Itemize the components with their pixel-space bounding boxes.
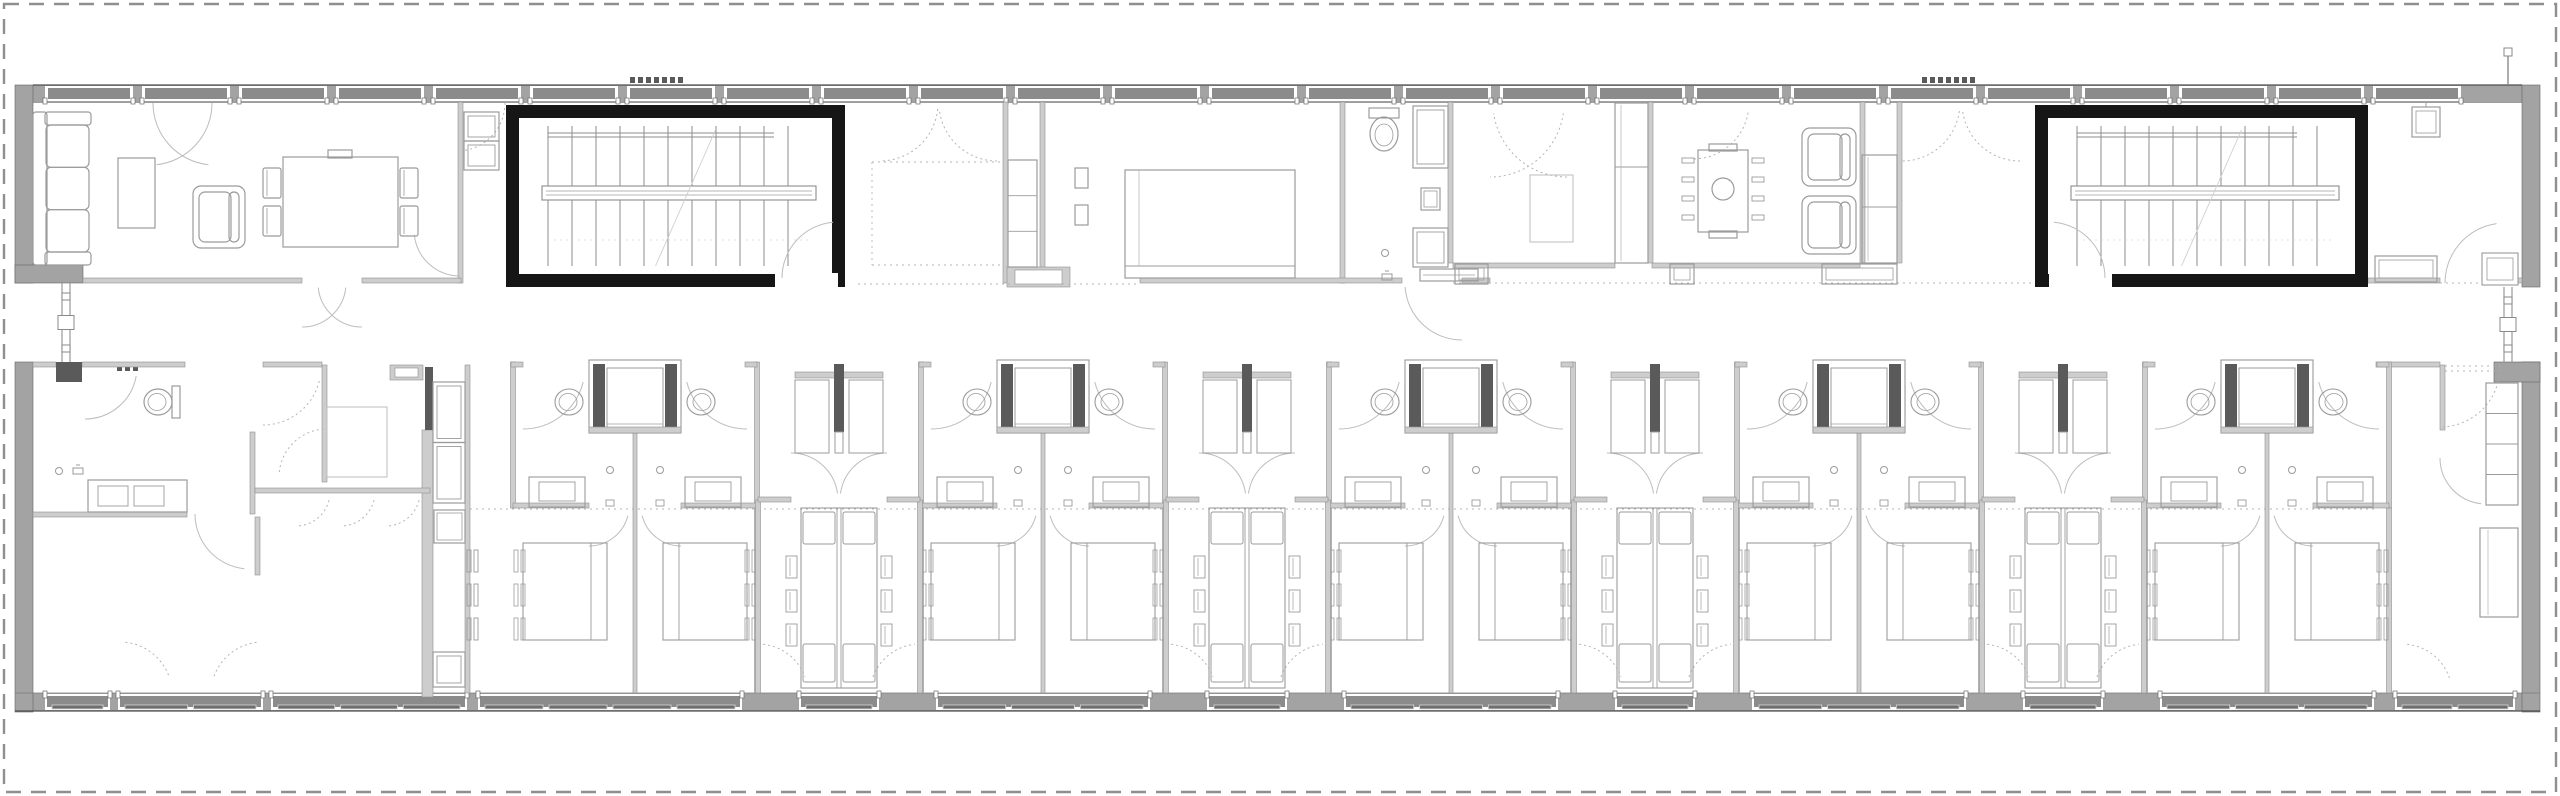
double-vanity	[88, 480, 187, 512]
meeting-table	[1682, 144, 1764, 238]
armchair	[193, 186, 245, 248]
service-shaft	[1813, 360, 1905, 433]
duct	[2412, 103, 2440, 137]
study-spine-1	[756, 364, 923, 693]
study-spine-3	[1572, 364, 1739, 693]
bedroom-pair-1	[511, 360, 760, 693]
wardrobe	[1862, 155, 1897, 263]
corridor-recess	[795, 364, 883, 453]
shared-table	[2010, 508, 2116, 688]
service-shaft	[2221, 360, 2313, 433]
floor-plan-page	[0, 0, 2560, 796]
study-spine-4	[1980, 364, 2147, 693]
vanity	[1345, 477, 1401, 507]
appliance	[434, 510, 465, 543]
desk	[2480, 528, 2518, 617]
bedroom-pair-4	[1735, 360, 1984, 693]
cabinet	[464, 112, 499, 170]
corridor-recess	[1203, 364, 1291, 453]
niche	[2482, 253, 2518, 285]
shared-table	[1602, 508, 1708, 688]
kitchenette	[433, 652, 465, 687]
double-bed	[1125, 170, 1295, 278]
wardrobe	[2486, 383, 2518, 505]
bedroom-pair-5	[2143, 360, 2392, 693]
double-bed	[1747, 543, 1831, 640]
toilet	[144, 386, 180, 418]
stairwell-west	[506, 105, 845, 289]
tall-cabinet	[1413, 106, 1448, 168]
wall-shelves	[1075, 168, 1088, 225]
vanity	[1501, 477, 1557, 507]
vanity	[2161, 477, 2217, 507]
sofa	[33, 112, 91, 265]
shower-drain	[1382, 250, 1389, 257]
service-shaft	[1405, 360, 1497, 433]
bedroom-pair-3	[1327, 360, 1576, 693]
vanity	[685, 477, 741, 507]
vanity	[1753, 477, 1809, 507]
vanity	[937, 477, 993, 507]
double-bed	[663, 543, 747, 640]
double-bed	[2155, 543, 2239, 640]
floor-plan	[0, 0, 2560, 796]
double-bed	[1479, 543, 1563, 640]
shared-table	[1194, 508, 1300, 688]
closet	[1008, 160, 1037, 267]
armchair	[1802, 196, 1856, 254]
double-bed	[1071, 543, 1155, 640]
stairwell-east	[2035, 105, 2368, 289]
shower-fixture	[73, 465, 83, 474]
shared-table	[786, 508, 892, 688]
armchair	[1802, 128, 1856, 186]
coffee-table	[118, 158, 155, 228]
double-bed	[1339, 543, 1423, 640]
service-shaft	[997, 360, 1089, 433]
vanity	[2317, 477, 2373, 507]
corridor-recess	[2019, 364, 2107, 453]
dining-table	[263, 150, 418, 247]
bedroom-pair-2	[919, 360, 1168, 693]
double-bed	[2295, 543, 2379, 640]
bench	[2375, 256, 2437, 282]
shower-drain	[56, 468, 63, 475]
vanity	[529, 477, 585, 507]
inner-room	[327, 407, 387, 477]
links	[58, 283, 2516, 362]
corridor-recess	[1611, 364, 1699, 453]
tall-cabinet	[1413, 228, 1448, 267]
double-bed	[523, 543, 607, 640]
double-bed	[931, 543, 1015, 640]
wardrobe	[1615, 103, 1648, 263]
appliance	[1421, 188, 1440, 210]
rug	[1530, 175, 1573, 242]
toilet	[1369, 108, 1399, 151]
vanity	[1909, 477, 1965, 507]
study-spine-2	[1164, 364, 1331, 693]
service-shaft	[589, 360, 681, 433]
double-bed	[1887, 543, 1971, 640]
vanity	[1093, 477, 1149, 507]
kitchenette	[433, 382, 465, 503]
